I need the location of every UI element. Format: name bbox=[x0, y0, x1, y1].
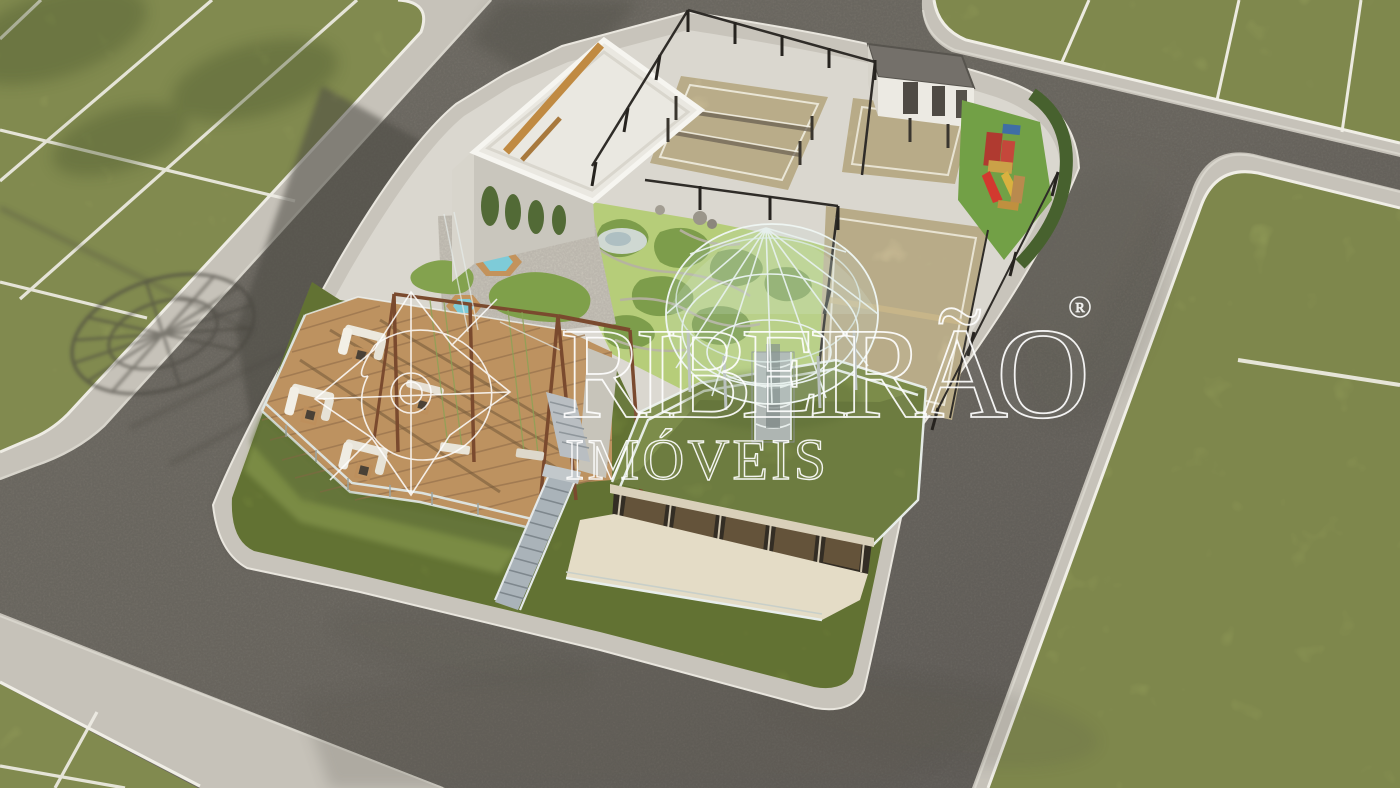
svg-text:IMÓVEIS: IMÓVEIS bbox=[565, 427, 830, 492]
svg-text:RIBEIRÃO: RIBEIRÃO bbox=[560, 302, 1092, 446]
svg-text:R: R bbox=[1075, 301, 1085, 316]
